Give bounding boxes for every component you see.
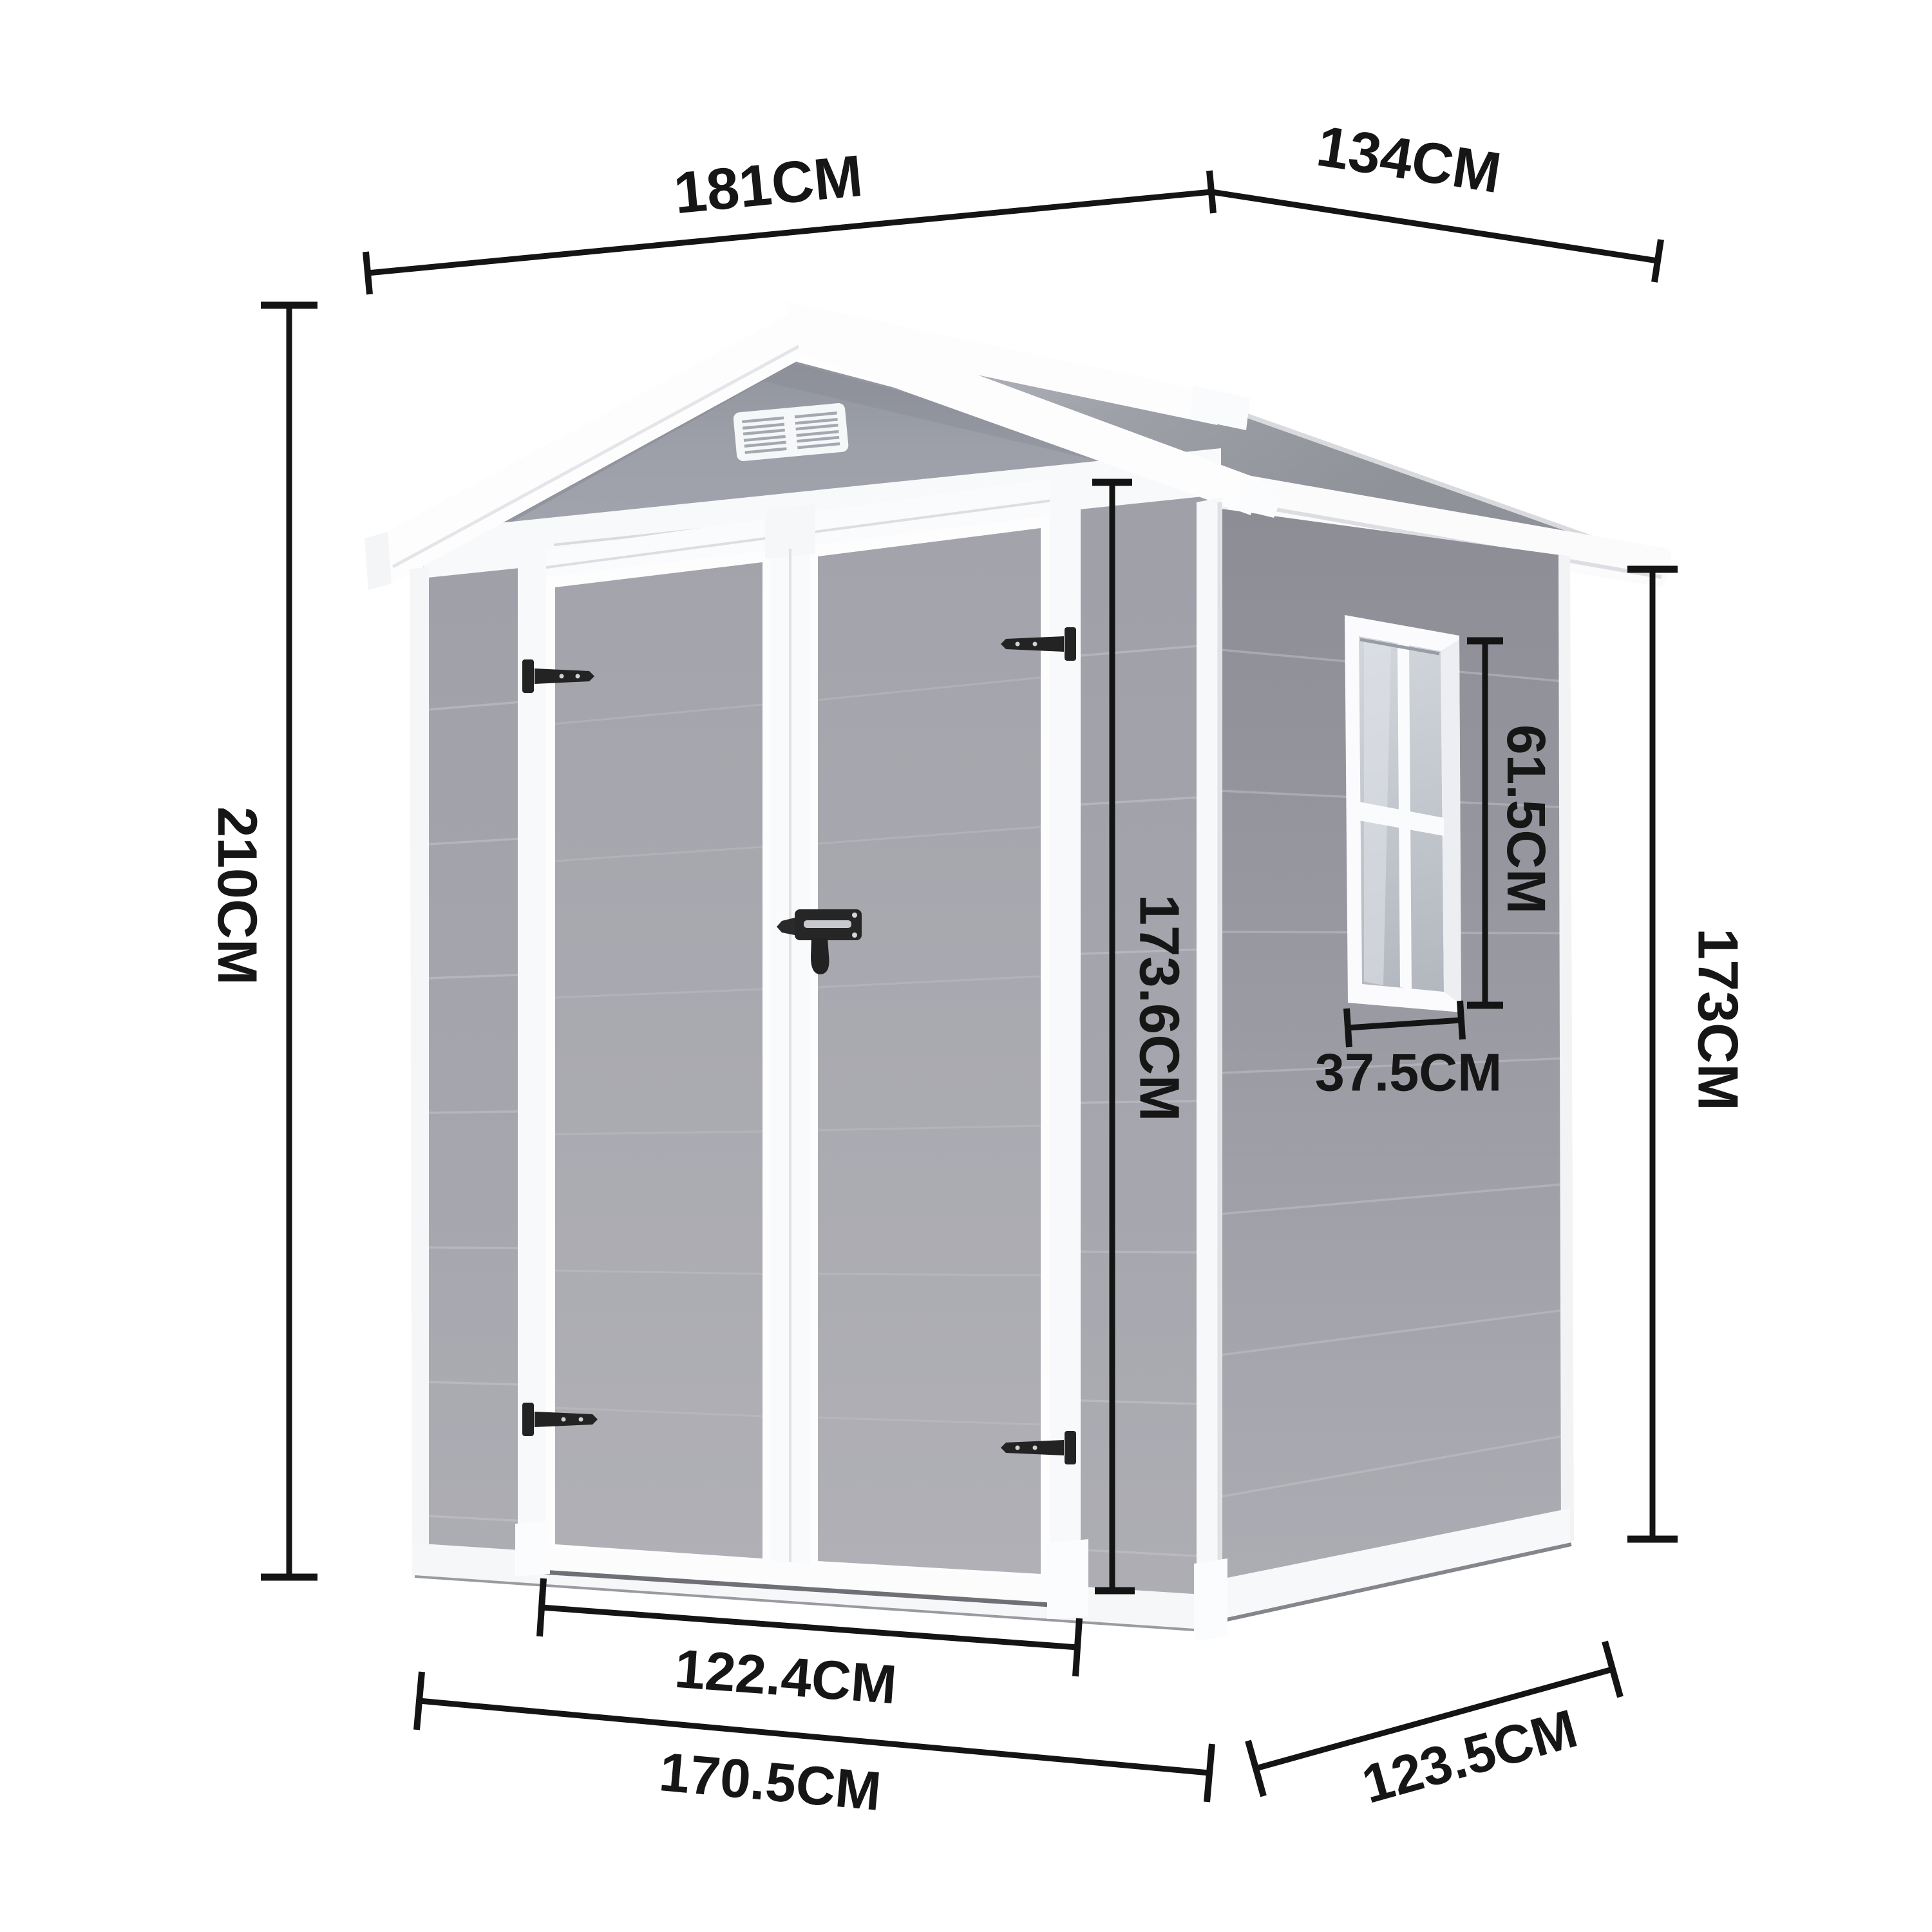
svg-text:61.5CM: 61.5CM: [1496, 724, 1557, 914]
svg-text:173.6CM: 173.6CM: [1128, 894, 1191, 1121]
svg-text:173CM: 173CM: [1687, 928, 1750, 1111]
svg-text:210CM: 210CM: [206, 806, 268, 985]
svg-text:37.5CM: 37.5CM: [1315, 1043, 1502, 1103]
